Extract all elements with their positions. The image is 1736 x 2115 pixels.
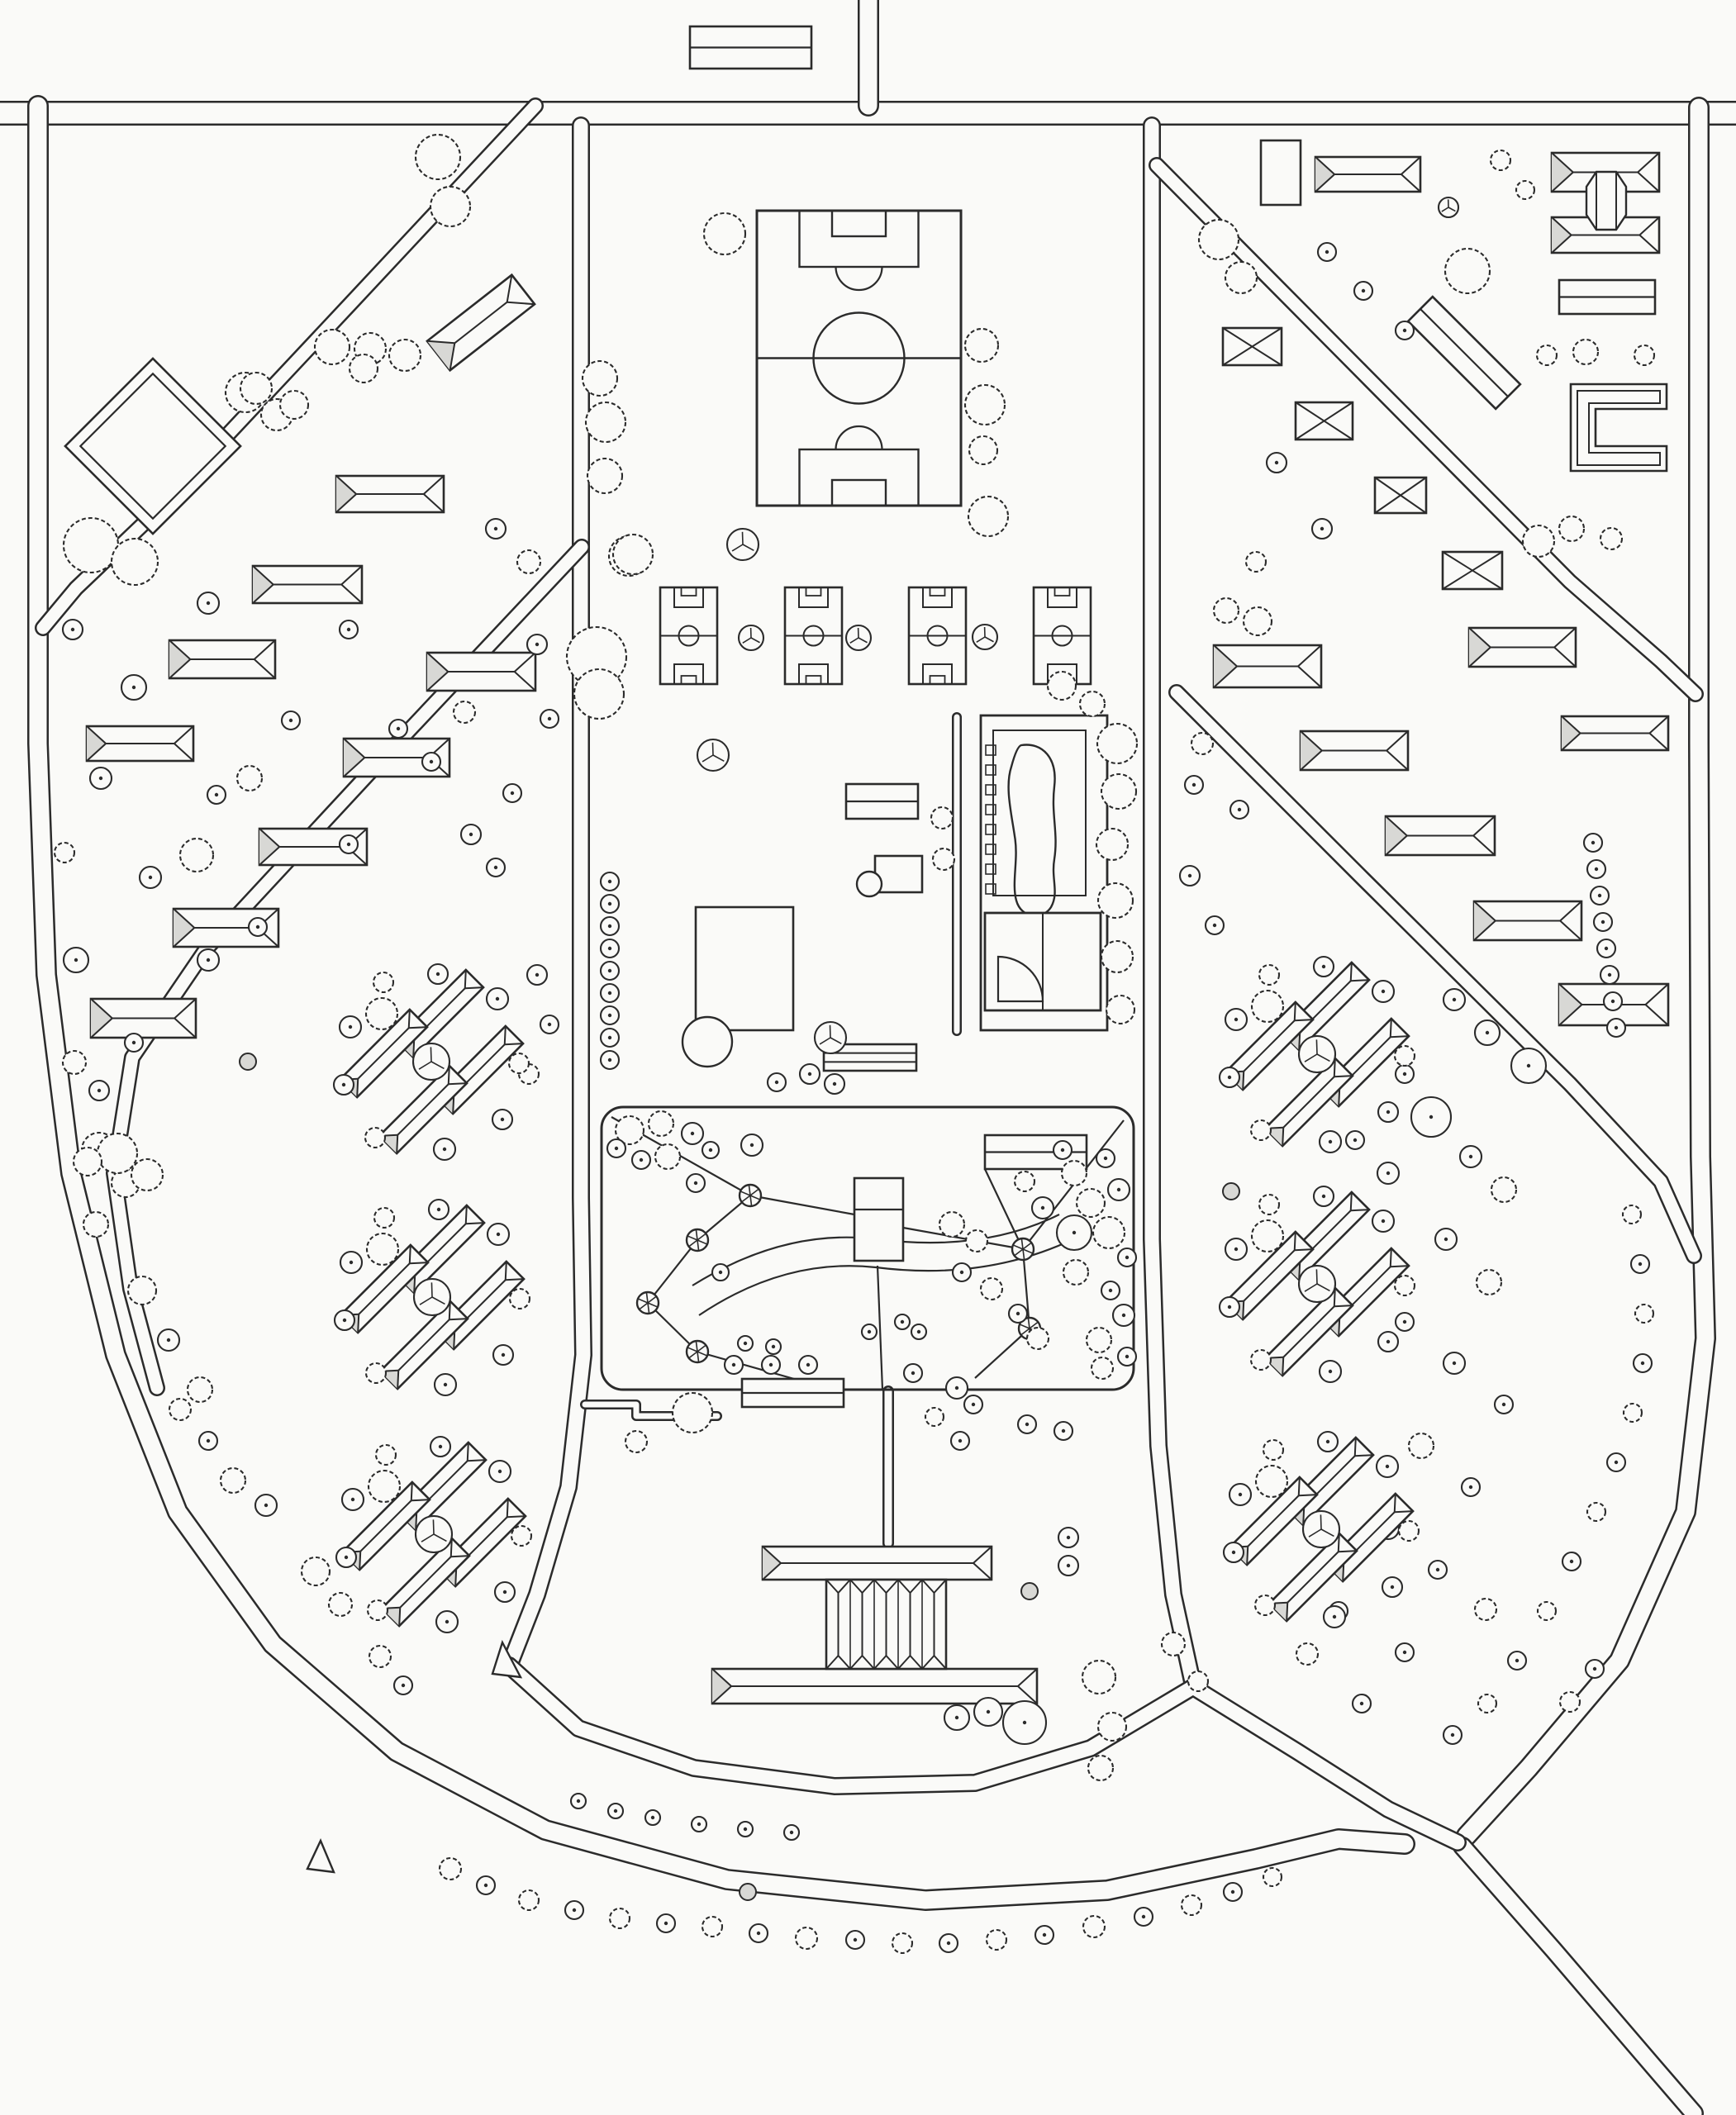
building-court-circle: [683, 1017, 732, 1067]
barrack: [1386, 816, 1495, 855]
tree-bushy: [1296, 1643, 1318, 1665]
tree-bushy: [1083, 1916, 1105, 1937]
officers-house: [1443, 552, 1502, 589]
tree-bushy: [1252, 991, 1283, 1022]
tree-bushy: [329, 1593, 352, 1616]
tree-trunk-dot: [256, 925, 259, 929]
barrack: [1469, 628, 1576, 667]
tree-trunk-dot: [744, 1342, 747, 1345]
tree-trunk-dot: [345, 1556, 348, 1559]
tree-trunk-dot: [1403, 1072, 1406, 1076]
tree-trunk-dot: [494, 866, 497, 869]
tree-bushy: [188, 1377, 212, 1402]
tree-trunk-dot: [1403, 329, 1406, 332]
tree-trunk-dot: [694, 1181, 697, 1185]
tree-bushy: [1080, 692, 1105, 716]
tree-trunk-dot: [1429, 1115, 1433, 1119]
park-pavilion: [854, 1178, 903, 1261]
barrack: [91, 999, 196, 1038]
tree-trunk-dot: [608, 947, 611, 950]
tree-trunk-dot: [732, 1363, 735, 1366]
barrack: [427, 653, 535, 691]
tree-trunk-dot: [402, 1684, 405, 1687]
officers-house: [1296, 402, 1353, 440]
tree-trunk-dot: [498, 1470, 502, 1473]
soccer-field: [757, 211, 961, 506]
tree-bushy: [1027, 1328, 1049, 1349]
tree-bushy: [1077, 1189, 1105, 1217]
tree-bushy: [1477, 1270, 1501, 1295]
tree-trunk-dot: [1188, 874, 1191, 877]
tree-bushy: [1263, 1440, 1283, 1460]
tree-trunk-dot: [469, 833, 473, 836]
tree-bushy: [1246, 552, 1266, 572]
tree-trunk-dot: [1073, 1231, 1076, 1234]
tree-bushy: [1214, 598, 1239, 623]
tree-trunk-dot: [1436, 1568, 1439, 1571]
tree-trunk-dot: [1333, 1615, 1336, 1618]
tree-trunk-dot: [349, 1025, 352, 1029]
tree-bushy: [416, 135, 460, 179]
tree-bushy: [389, 340, 421, 371]
tree-trunk-dot: [608, 1036, 611, 1039]
tree-trunk-dot: [1062, 1429, 1065, 1433]
tree-trunk-dot: [1016, 1312, 1020, 1315]
tree-bushy: [1491, 1177, 1516, 1202]
tree-trunk-dot: [503, 1590, 507, 1594]
tree-trunk-dot: [1125, 1256, 1129, 1259]
tree-trunk-dot: [342, 1083, 345, 1086]
tree-shaded: [740, 1884, 756, 1900]
tree-trunk-dot: [709, 1148, 712, 1152]
tree-bushy: [1634, 345, 1654, 365]
tree-trunk-dot: [1593, 1667, 1596, 1671]
tree-bushy: [1587, 1503, 1605, 1521]
tree-bushy: [1259, 1195, 1279, 1214]
tree-trunk-dot: [347, 843, 350, 846]
tree-bushy: [1048, 672, 1076, 700]
tree-bushy: [702, 1917, 722, 1937]
line: [1316, 1039, 1317, 1054]
tree-trunk-dot: [608, 1014, 611, 1017]
tree-bushy: [931, 807, 953, 829]
tree-trunk-dot: [1386, 1172, 1390, 1175]
tree-trunk-dot: [608, 880, 611, 883]
barrack: [253, 566, 362, 603]
tree-bushy: [933, 848, 954, 870]
tree-trunk-dot: [615, 1147, 618, 1150]
tree-bushy: [969, 436, 997, 464]
tree-trunk-dot: [445, 1620, 449, 1623]
tree-bushy: [517, 550, 540, 573]
tree-bushy: [1015, 1172, 1034, 1191]
tree-trunk-dot: [577, 1799, 580, 1803]
pool-complex: [981, 715, 1107, 1030]
tree-bushy: [1395, 1276, 1415, 1295]
tree-bushy: [625, 1431, 647, 1452]
tree-bushy: [509, 1053, 529, 1073]
service-building: [742, 1379, 844, 1407]
tree-trunk-dot: [1386, 1110, 1390, 1114]
tree-bushy: [1537, 345, 1557, 365]
tree-trunk-dot: [719, 1271, 722, 1274]
tree-bushy: [240, 373, 272, 404]
tree-bushy: [366, 1363, 386, 1383]
gym-hall: [696, 907, 793, 1030]
tree-trunk-dot: [573, 1908, 576, 1912]
annex: [1559, 280, 1655, 314]
tree-trunk-dot: [757, 1932, 760, 1935]
tree-trunk-dot: [1469, 1155, 1472, 1158]
tree-bushy: [583, 361, 617, 396]
tree-trunk-dot: [98, 1089, 101, 1092]
site-plan-drawing: [0, 0, 1736, 2115]
tree-trunk-dot: [289, 719, 293, 722]
building-court-circle: [857, 872, 882, 896]
tree-trunk-dot: [494, 527, 497, 530]
tree-trunk-dot: [548, 717, 551, 720]
tree-bushy: [1162, 1633, 1185, 1656]
tree-trunk-dot: [1382, 1219, 1385, 1223]
storehouse: [846, 784, 918, 819]
tree-trunk-dot: [1444, 1238, 1448, 1241]
tree-trunk-dot: [1234, 1248, 1238, 1251]
tree-trunk-dot: [806, 1363, 810, 1366]
tree-trunk-dot: [1322, 965, 1325, 968]
tree-trunk-dot: [1451, 1733, 1454, 1737]
tree-bushy: [1256, 1466, 1287, 1497]
tree-bushy: [368, 1600, 388, 1620]
tree-trunk-dot: [1591, 841, 1595, 844]
line: [431, 1282, 432, 1297]
tree-bushy: [180, 839, 213, 872]
tree-bushy: [55, 843, 74, 863]
line: [430, 1047, 431, 1062]
tree-bushy: [510, 1289, 530, 1309]
tree-trunk-dot: [1329, 1370, 1332, 1373]
tree-bushy: [1538, 1602, 1556, 1620]
tree-trunk-dot: [614, 1809, 617, 1813]
tree-trunk-dot: [1615, 1026, 1618, 1029]
tree-trunk-dot: [1025, 1423, 1029, 1426]
tree-bushy: [1259, 965, 1279, 985]
tree-trunk-dot: [1043, 1933, 1046, 1937]
tree-trunk-dot: [511, 791, 514, 795]
tree-trunk-dot: [1641, 1362, 1644, 1365]
tree-bushy: [1182, 1895, 1201, 1915]
tree-trunk-dot: [1605, 947, 1608, 950]
tree-trunk-dot: [790, 1831, 793, 1834]
tree-trunk-dot: [1322, 1195, 1325, 1198]
tree-bushy: [350, 354, 378, 383]
tree-bushy: [519, 1890, 539, 1910]
line: [1320, 1514, 1321, 1529]
hq-tower-body: [1586, 172, 1626, 230]
tree-trunk-dot: [808, 1072, 811, 1076]
tree-bushy: [1263, 1868, 1282, 1886]
tree-trunk-dot: [868, 1330, 871, 1333]
tree-trunk-dot: [439, 1445, 442, 1448]
tree-bushy: [1251, 1350, 1271, 1370]
tree-trunk-dot: [1329, 1140, 1332, 1143]
tree-trunk-dot: [691, 1132, 694, 1135]
tree-trunk-dot: [1192, 783, 1196, 787]
tree-trunk-dot: [99, 777, 102, 780]
tree-trunk-dot: [901, 1320, 904, 1324]
tree-trunk-dot: [1122, 1314, 1125, 1317]
tree-bushy: [1255, 1595, 1275, 1615]
tree-bushy: [1600, 528, 1622, 549]
tree-bushy: [1082, 1661, 1115, 1694]
line: [433, 1519, 434, 1534]
tree-trunk-dot: [264, 1504, 268, 1507]
tree-trunk-dot: [1608, 973, 1611, 977]
depot: [1261, 140, 1301, 205]
tree-bushy: [968, 497, 1008, 536]
tree-trunk-dot: [535, 643, 539, 646]
tree-trunk-dot: [1403, 1651, 1406, 1654]
tree-trunk-dot: [1117, 1188, 1120, 1191]
tree-bushy: [981, 1278, 1002, 1300]
tree-trunk-dot: [1486, 1031, 1489, 1034]
tree-trunk-dot: [955, 1386, 958, 1390]
tree-bushy: [454, 701, 475, 723]
tree-bushy: [1101, 774, 1136, 809]
tree-bushy: [1475, 1599, 1496, 1620]
tree-bushy: [369, 1646, 391, 1667]
tree-trunk-dot: [132, 1041, 136, 1044]
tree-bushy: [1395, 1046, 1415, 1066]
tree-bushy: [373, 972, 393, 992]
tree-trunk-dot: [608, 924, 611, 928]
tree-shaded: [1223, 1183, 1239, 1200]
tree-trunk-dot: [1109, 1289, 1112, 1292]
tree-trunk-dot: [1453, 998, 1456, 1001]
tree-trunk-dot: [444, 1383, 447, 1386]
tree-trunk-dot: [497, 1233, 500, 1236]
tree-trunk-dot: [535, 973, 539, 977]
tree-bushy: [1516, 181, 1534, 199]
barrack: [1562, 716, 1668, 750]
tree-trunk-dot: [1239, 1493, 1242, 1496]
tree-trunk-dot: [1362, 289, 1365, 292]
tree-bushy: [367, 1233, 398, 1265]
tree-trunk-dot: [1502, 1403, 1505, 1406]
tree-bushy: [1063, 1260, 1088, 1285]
tree-trunk-dot: [1386, 1465, 1389, 1468]
tree-trunk-dot: [1275, 461, 1278, 464]
tree-bushy: [1098, 883, 1133, 918]
tree-trunk-dot: [1615, 1461, 1618, 1464]
tree-bushy: [369, 1471, 400, 1502]
tree-trunk-dot: [955, 1716, 958, 1719]
tree-trunk-dot: [1638, 1262, 1642, 1266]
tree-bushy: [112, 539, 158, 585]
tree-trunk-dot: [430, 760, 433, 763]
officers-house: [1223, 328, 1282, 365]
hq-tower: [1586, 172, 1626, 230]
tree-trunk-dot: [1104, 1157, 1107, 1160]
tree-trunk-dot: [1570, 1560, 1573, 1563]
tree-bushy: [237, 766, 262, 791]
tree-bushy: [1225, 262, 1257, 293]
tree-trunk-dot: [608, 969, 611, 972]
tree-trunk-dot: [1325, 250, 1329, 254]
tree-trunk-dot: [1595, 867, 1598, 871]
tree-trunk-dot: [1391, 1585, 1394, 1589]
tree-trunk-dot: [1469, 1485, 1472, 1489]
tree-bushy: [1523, 525, 1554, 557]
officers-house: [1375, 478, 1426, 513]
tree-bushy: [376, 1445, 396, 1465]
barrack: [1315, 157, 1420, 192]
tree-bushy: [221, 1468, 245, 1493]
tree-trunk-dot: [351, 1498, 354, 1501]
tree-bushy: [987, 1930, 1006, 1950]
tree-trunk-dot: [149, 876, 152, 879]
campus-site-plan: [0, 0, 1736, 2115]
tree-trunk-dot: [1353, 1138, 1357, 1142]
tree-bushy: [64, 518, 118, 573]
tree-bushy: [1096, 829, 1128, 860]
tree-trunk-dot: [651, 1816, 654, 1819]
tree-bushy: [796, 1927, 817, 1949]
tree-bushy: [965, 329, 998, 362]
tree-trunk-dot: [501, 1118, 504, 1121]
tree-bushy: [302, 1557, 330, 1585]
tree-bushy: [966, 1230, 987, 1252]
tree-trunk-dot: [1228, 1076, 1231, 1079]
barrack: [1474, 901, 1581, 940]
tree-trunk-dot: [215, 793, 218, 796]
tree-trunk-dot: [775, 1081, 778, 1084]
barrack: [1301, 731, 1408, 770]
barrack: [87, 726, 193, 761]
tree-bushy: [366, 998, 397, 1029]
tree-bushy: [1098, 1713, 1126, 1741]
tree-trunk-dot: [1386, 1340, 1390, 1343]
tree-trunk-dot: [502, 1353, 505, 1357]
tree-bushy: [649, 1111, 673, 1136]
tree-trunk-dot: [167, 1338, 170, 1342]
tree-trunk-dot: [1611, 1000, 1615, 1003]
tree-bushy: [1560, 1692, 1580, 1712]
tree-bushy: [74, 1148, 102, 1176]
tree-bushy: [1635, 1305, 1653, 1323]
tree-bushy: [1199, 220, 1239, 259]
tree-bushy: [587, 459, 622, 493]
tree-trunk-dot: [437, 1208, 440, 1211]
tree-trunk-dot: [1238, 808, 1241, 811]
tree-trunk-dot: [1061, 1148, 1064, 1152]
tree-trunk-dot: [71, 628, 74, 631]
tree-bushy: [1409, 1433, 1434, 1458]
barrack: [336, 476, 444, 512]
tree-trunk-dot: [772, 1345, 775, 1348]
tree-bushy: [1188, 1671, 1208, 1691]
tree-bushy: [1251, 1120, 1271, 1140]
tree-trunk-dot: [608, 991, 611, 995]
tree-trunk-dot: [1320, 527, 1324, 530]
tree-trunk-dot: [854, 1938, 857, 1942]
tree-bushy: [1252, 1220, 1283, 1252]
tree-trunk-dot: [207, 1439, 210, 1442]
tree-bushy: [892, 1933, 912, 1953]
tree-trunk-dot: [436, 972, 440, 976]
tree-bushy: [1478, 1694, 1496, 1713]
tree-bushy: [1097, 724, 1137, 763]
tree-bushy: [965, 385, 1005, 425]
tree-bushy: [1624, 1404, 1642, 1422]
tree-trunk-dot: [496, 997, 499, 1000]
tree-trunk-dot: [350, 1261, 353, 1264]
tree-bushy: [63, 1051, 86, 1074]
tree-trunk-dot: [947, 1942, 950, 1945]
tree-trunk-dot: [960, 1271, 963, 1274]
tree-bushy: [1093, 1217, 1125, 1248]
tree-bushy: [586, 402, 625, 442]
tree-trunk-dot: [608, 1058, 611, 1062]
tree-trunk-dot: [1142, 1915, 1145, 1918]
tree-bushy: [430, 187, 470, 226]
tree-trunk-dot: [132, 686, 136, 689]
tree-bushy: [704, 213, 745, 254]
tree-bushy: [1088, 1756, 1113, 1780]
tree-bushy: [1062, 1161, 1087, 1186]
tree-trunk-dot: [1228, 1305, 1231, 1309]
tree-shaded: [240, 1053, 256, 1070]
tree-trunk-dot: [1125, 1355, 1129, 1358]
tree-bushy: [511, 1526, 531, 1546]
tree-trunk-dot: [1527, 1064, 1530, 1067]
tree-trunk-dot: [1232, 1551, 1235, 1554]
tree-trunk-dot: [548, 1023, 551, 1026]
tree-trunk-dot: [207, 958, 210, 962]
tree-bushy: [131, 1159, 163, 1191]
line: [1316, 1269, 1317, 1284]
tree-trunk-dot: [343, 1319, 346, 1322]
tree-bushy: [365, 1128, 385, 1148]
tree-bushy: [610, 1908, 630, 1928]
tree-trunk-dot: [833, 1082, 836, 1086]
tree-trunk-dot: [697, 1823, 701, 1826]
tree-bushy: [1445, 249, 1490, 293]
tree-trunk-dot: [958, 1439, 962, 1442]
barrack: [169, 640, 275, 678]
tree-trunk-dot: [1601, 920, 1605, 924]
tree-trunk-dot: [1234, 1018, 1238, 1021]
tree-bushy: [83, 1212, 108, 1237]
gatehouse: [690, 26, 811, 69]
tree-trunk-dot: [769, 1363, 773, 1366]
tree-bushy: [925, 1408, 944, 1426]
tree-trunk-dot: [397, 727, 400, 730]
tree-trunk-dot: [744, 1827, 747, 1831]
tree-bushy: [574, 669, 624, 719]
tree-bushy: [1087, 1328, 1111, 1352]
tree-bushy: [98, 1134, 137, 1173]
tree-bushy: [673, 1393, 712, 1433]
tree-trunk-dot: [347, 628, 350, 631]
tree-trunk-dot: [640, 1158, 643, 1162]
tree-trunk-dot: [1453, 1362, 1456, 1365]
tree-bushy: [655, 1144, 680, 1169]
tree-trunk-dot: [917, 1330, 920, 1333]
tree-bushy: [280, 391, 308, 419]
tree-bushy: [128, 1276, 156, 1305]
tree-bushy: [613, 535, 653, 574]
tree-bushy: [1191, 733, 1213, 754]
